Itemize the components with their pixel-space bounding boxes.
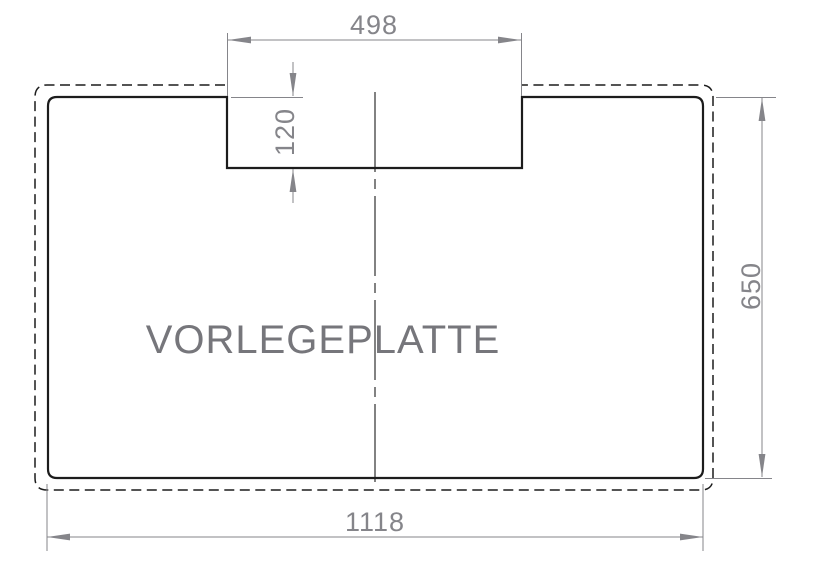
- plate-title: VORLEGEPLATTE: [146, 318, 501, 362]
- technical-drawing: 498 120 650 1118 VORLEGEPLATTE: [0, 0, 822, 580]
- drawing-canvas: 498 120 650 1118 VORLEGEPLATTE: [0, 0, 822, 580]
- dim-width-value: 1118: [345, 507, 405, 537]
- dim-notch-depth-value: 120: [270, 108, 300, 156]
- plate-title-group: VORLEGEPLATTE: [146, 318, 501, 362]
- canvas-background: [0, 0, 822, 580]
- dim-notch-width-value: 498: [350, 10, 398, 40]
- dim-height-value: 650: [736, 262, 766, 310]
